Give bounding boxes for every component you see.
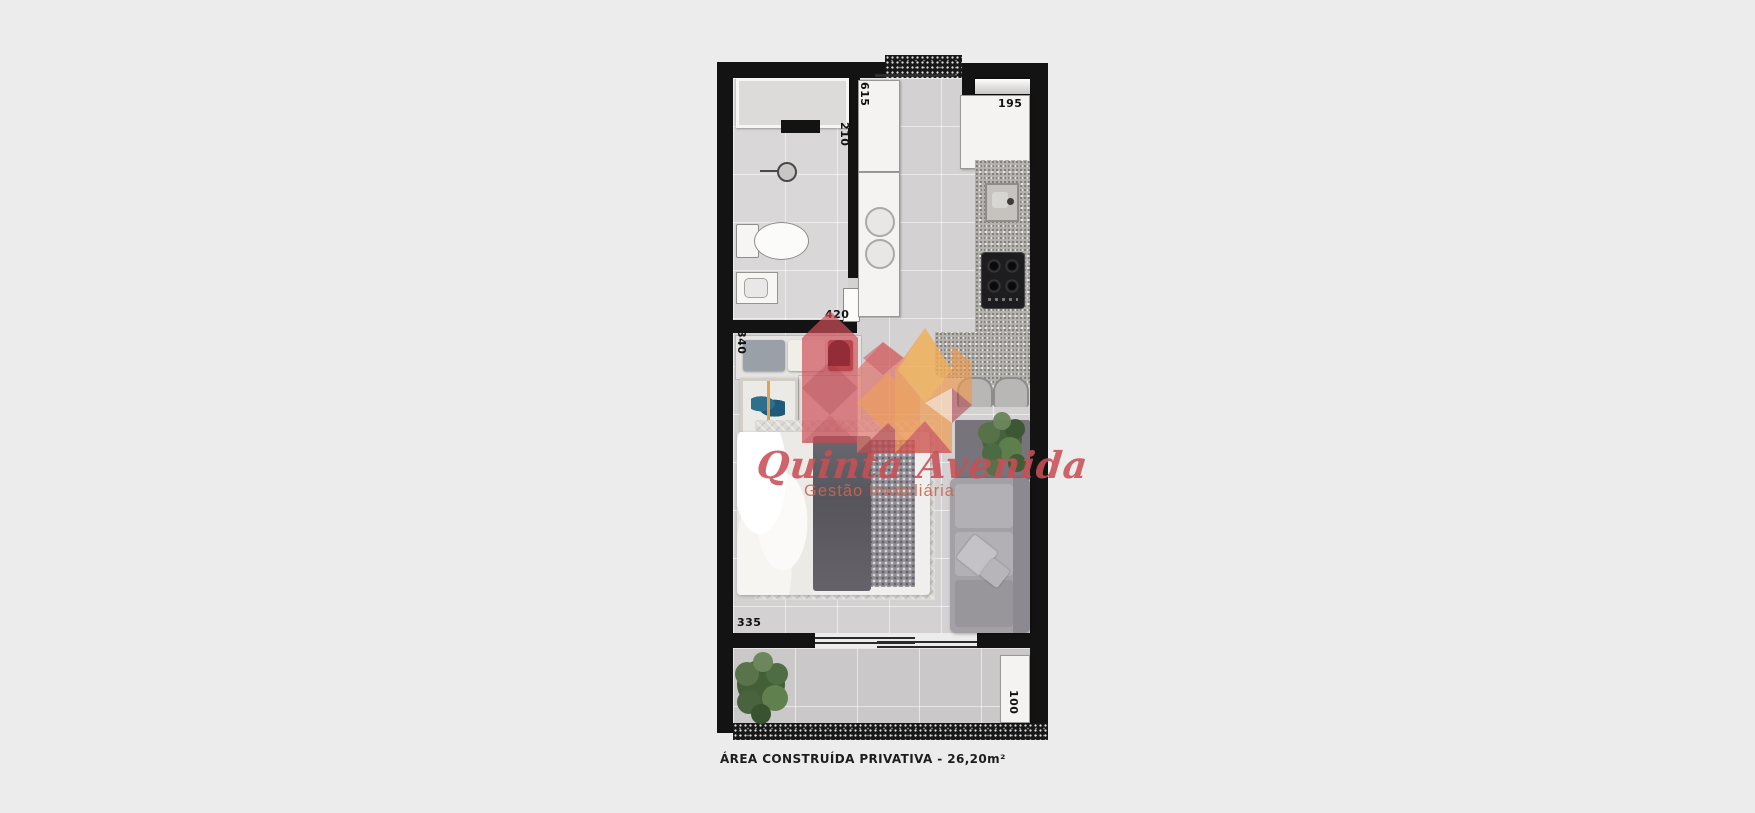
- wall-balcony-right: [977, 633, 1030, 648]
- wall-top: [717, 62, 885, 78]
- brand-logo-icon: [800, 283, 992, 458]
- dimension-hall-width: 210: [839, 122, 850, 146]
- dimension-bedroom-length: 335: [737, 617, 761, 628]
- dimension-closet-width: 340: [736, 330, 747, 354]
- entry-door: [875, 74, 955, 77]
- brand-tagline: Gestão Imobiliária: [757, 482, 1002, 501]
- dimension-kitchen-width: 195: [998, 98, 1022, 109]
- shower-partition: [781, 120, 820, 133]
- area-caption: ÁREA CONSTRUÍDA PRIVATIVA - 26,20m²: [720, 752, 1006, 766]
- dimension-balcony-depth: 100: [1008, 690, 1019, 714]
- balcony-plant-icon: [731, 648, 799, 728]
- laundry-basket-icon: [865, 239, 895, 269]
- wall-right: [1030, 63, 1048, 723]
- bar-stool-icon: [993, 377, 1029, 407]
- towel-stack-gray: [743, 340, 785, 371]
- screenshot-canvas: 615 210 195 420 340 335 100: [0, 0, 1755, 813]
- kitchen-sink-icon: [985, 183, 1019, 222]
- dimension-entry-depth: 615: [859, 82, 870, 106]
- bathroom-sink-icon: [736, 272, 778, 304]
- window-top: [973, 77, 1036, 96]
- toilet-icon: [754, 222, 809, 260]
- balcony-sliding-door-panel-2: [877, 641, 977, 648]
- floor-plan: 615 210 195 420 340 335 100: [717, 50, 1048, 740]
- sofa: [950, 478, 1030, 633]
- brand-name: Quinta Avenida: [755, 443, 1005, 487]
- shower-head-icon: [777, 162, 797, 182]
- wall-balcony-left: [717, 633, 815, 648]
- laundry-basket-icon: [865, 207, 895, 237]
